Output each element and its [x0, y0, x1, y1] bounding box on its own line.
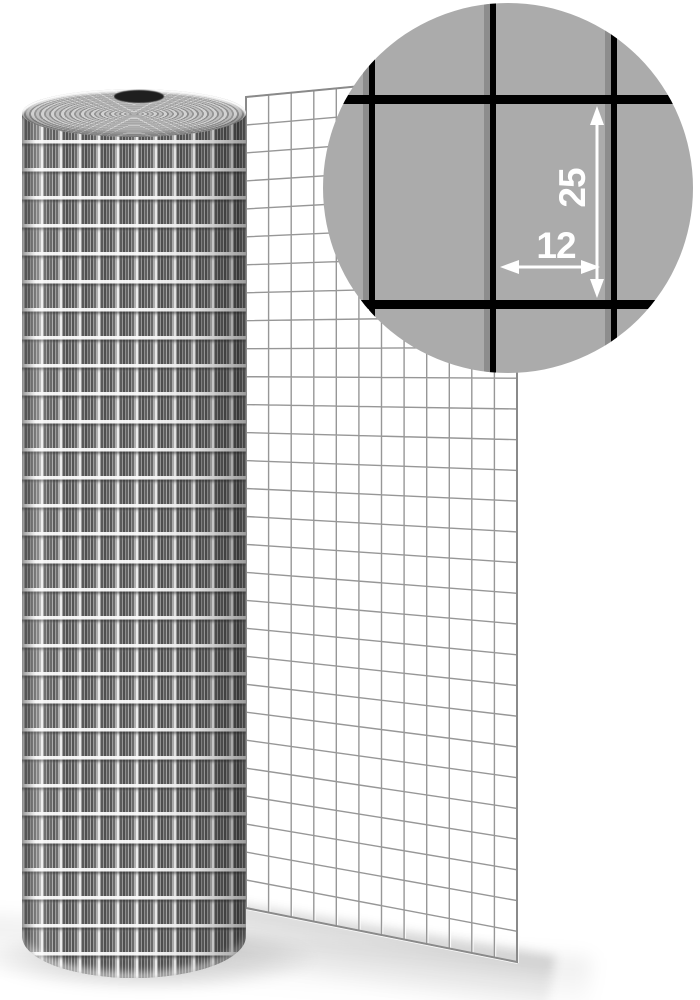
cell-width-label: 12 [533, 224, 579, 268]
magnifier-circle: 25 12 [323, 3, 693, 373]
product-image: 25 12 [0, 0, 700, 1000]
arrowhead-up-icon [590, 106, 604, 125]
arrowhead-left-icon [500, 260, 519, 274]
dimension-arrows [323, 3, 693, 373]
mesh-roll-body [22, 112, 246, 978]
cell-height-label: 25 [551, 165, 595, 211]
arrowhead-down-icon [590, 279, 604, 298]
roll-core-hole [114, 90, 164, 103]
